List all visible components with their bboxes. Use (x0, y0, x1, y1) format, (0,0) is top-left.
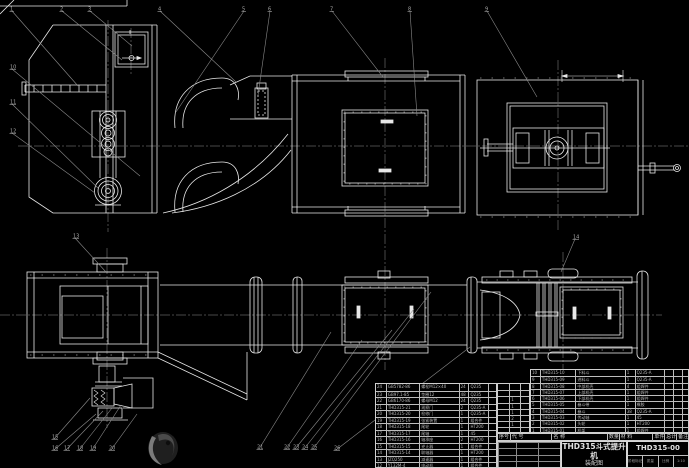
bom-cell: 1 (459, 444, 469, 450)
bom-table-left: 24GB5782-86螺栓M12×4024Q23523GB97.1-85垫圈12… (375, 383, 497, 468)
bom-cell (498, 397, 509, 402)
bom-cell: Q235 (468, 398, 488, 404)
bom-cell: THD315-16 (386, 437, 419, 443)
side-elevation-view (0, 0, 681, 217)
bom-cell: 2 (531, 421, 540, 426)
bom-row: 4THD315-04畚斗38Q235-A (531, 408, 688, 414)
bom-row: 序号代 号名 称数量材 料单件总计备注 (498, 434, 688, 441)
bom-cell: 组合件 (468, 463, 488, 468)
bom-cell (673, 409, 682, 414)
bom-cell: 22 (376, 398, 386, 404)
bom-cell: 组焊件 (635, 384, 665, 389)
bom-cell: 材 料 (619, 434, 653, 441)
bom-cell (509, 384, 519, 390)
bom-cell: 螺母M12 (419, 398, 458, 404)
bom-cell: 10 (531, 370, 540, 376)
bom-cell: 20 (376, 411, 386, 417)
bom-cell (664, 421, 673, 426)
bom-row: 24GB5782-86螺栓M12×4024Q235 (376, 384, 496, 391)
bom-cell (488, 424, 496, 430)
bom-row: 1 (498, 396, 529, 402)
bom-cell: 1 (509, 422, 519, 427)
title-block-footer: 阶段标记质量比例1:10 (628, 455, 688, 468)
bom-cell (673, 421, 682, 426)
bom-cell (682, 377, 688, 382)
bom-cell (498, 384, 509, 390)
bom-cell: Q235-A (635, 377, 665, 382)
bom-cell: THD315-04 (540, 409, 576, 414)
bom-row (498, 390, 529, 396)
bom-row: 20THD315-20检修门1Q235-A (376, 410, 496, 417)
bom-cell: THD315-21 (386, 405, 419, 411)
bom-cell (682, 402, 688, 407)
bom-cell: 橡胶 (635, 402, 665, 407)
bom-cell (520, 422, 529, 427)
bom-cell (520, 404, 529, 409)
bom-cell: 2 (459, 405, 469, 411)
bom-cell: THD315-05 (540, 402, 576, 407)
bom-row (498, 384, 529, 390)
bom-cell: 电动机 (419, 463, 458, 468)
bom-cell: 畚斗 (575, 409, 624, 414)
leader-line (66, 411, 103, 450)
bom-cell (520, 416, 529, 421)
bom-cell: 螺栓M12×40 (419, 384, 458, 391)
leader-line (487, 11, 537, 97)
bom-cell: 下部机壳 (575, 396, 624, 401)
bom-cell: Q235-A (468, 411, 488, 417)
bom-row: 9THD315-09进料斗1Q235-A (531, 376, 688, 382)
bom-cell: 3 (531, 415, 540, 420)
leader-line (75, 238, 106, 272)
bom-row: 7THD315-07上部机壳1组焊件 (531, 389, 688, 395)
bom-row: 12Y132M-4电动机1组合件 (376, 462, 496, 468)
bom-table-right: 10THD315-10下料斗1Q235-A9THD315-09进料斗1Q235-… (530, 369, 689, 433)
bom-header-row: 序号代 号名 称数量材 料单件总计备注 (497, 433, 689, 441)
bom-cell: HT200 (635, 421, 665, 426)
bom-cell: 15 (376, 444, 386, 450)
bom-cell: THD315-18 (386, 424, 419, 430)
bom-cell: 1 (459, 418, 469, 424)
bom-cell (488, 384, 496, 391)
bom-cell (488, 457, 496, 463)
bom-cell (520, 397, 529, 402)
bom-row: 5THD315-05畚斗带1橡胶 (531, 401, 688, 407)
bom-cell: 组焊件 (635, 396, 665, 401)
bom-cell: 1 (625, 415, 635, 420)
bom-cell (664, 396, 673, 401)
bom-cell: 下料斗 (575, 370, 624, 376)
bom-cell: 48 (459, 392, 469, 398)
bom-cell: 组合件 (468, 418, 488, 424)
bom-cell: 13 (376, 457, 386, 463)
bom-cell: THD315-17 (386, 431, 419, 437)
bom-cell (664, 370, 673, 376)
bom-cell: 逆止器 (419, 444, 458, 450)
bom-cell: THD315-10 (540, 370, 576, 376)
bom-cell: 2 (459, 437, 469, 443)
bom-cell: 尾轮 (419, 424, 458, 430)
leader-line (332, 11, 383, 77)
bom-cell: 传动轴 (575, 415, 624, 420)
bom-cell: 序号 (498, 434, 510, 441)
bom-cell: 1 (625, 396, 635, 401)
bom-cell (664, 415, 673, 420)
bom-cell: 8 (531, 384, 540, 389)
bom-cell (488, 411, 496, 417)
bom-row: 10THD315-10下料斗1Q235-A (531, 370, 688, 376)
bom-cell: 1 (459, 424, 469, 430)
bom-row: 13JZQ250减速器1组合件 (376, 456, 496, 463)
bom-cell: 7 (531, 390, 540, 395)
bom-cell: 中部机壳 (575, 384, 624, 389)
bom-cell (488, 450, 496, 456)
bom-cell (488, 444, 496, 450)
bom-cell: 18 (376, 424, 386, 430)
bom-cell (509, 391, 519, 396)
leader-line (410, 11, 417, 116)
bom-cell (682, 384, 688, 389)
cad-drawing-sheet: 1234567891011121314151617181920212223242… (0, 0, 689, 468)
bom-cell: THD315-15 (386, 444, 419, 450)
bom-cell: 4 (531, 409, 540, 414)
bom-cell: 45 (468, 431, 488, 437)
bom-cell: 数量 (607, 434, 619, 441)
bom-cell (498, 391, 509, 396)
bom-cell (673, 377, 682, 382)
bom-cell: GB5782-86 (386, 384, 419, 391)
bom-cell (682, 370, 688, 376)
bom-cell (498, 422, 509, 427)
bom-cell: HT200 (468, 437, 488, 443)
bom-cell (664, 390, 673, 395)
bom-cell: 17 (376, 431, 386, 437)
title-block-footer-cell: 1:10 (673, 456, 688, 468)
bom-row: 14THD315-14联轴器1HT200 (376, 449, 496, 456)
title-block-number: THD315-00 阶段标记质量比例1:10 (627, 441, 689, 468)
bom-cell: Y132M-4 (386, 463, 419, 468)
bom-cell: 1 (459, 463, 469, 468)
bom-row: 1 (498, 403, 529, 409)
bom-cell: 38 (625, 409, 635, 414)
bom-cell: 头轮 (575, 421, 624, 426)
bom-cell: 观察门 (419, 405, 458, 411)
bom-cell (520, 410, 529, 415)
bom-cell: 19 (376, 418, 386, 424)
doc-type-label: 装配图 (562, 460, 626, 468)
bom-cell: HT200 (468, 450, 488, 456)
bom-cell (673, 390, 682, 395)
bom-cell: JZQ250 (386, 457, 419, 463)
bom-cell (664, 409, 673, 414)
bom-cell: GB6170-86 (386, 398, 419, 404)
bom-cell (488, 405, 496, 411)
leader-line (12, 11, 78, 86)
bom-cell (498, 404, 509, 409)
bom-cell: 1 (459, 431, 469, 437)
bom-cell (682, 396, 688, 401)
bom-row: 1 (498, 421, 529, 427)
bom-cell (673, 402, 682, 407)
bom-cell: 张紧装置 (419, 418, 458, 424)
bom-cell: 1 (459, 457, 469, 463)
bom-cell: 9 (531, 377, 540, 382)
bom-row: 2THD315-02头轮1HT200 (531, 420, 688, 426)
bom-row: 1 (498, 409, 529, 415)
bom-cell (682, 390, 688, 395)
bom-cell: 轴承座 (419, 437, 458, 443)
bom-cell: 1 (459, 450, 469, 456)
bom-row: 6THD315-06下部机壳1组焊件 (531, 395, 688, 401)
bom-cell: Q235 (468, 384, 488, 391)
bom-row: 23GB97.1-85垫圈1248Q235 (376, 391, 496, 398)
bom-row: 18THD315-18尾轮1HT200 (376, 423, 496, 430)
bom-cell: 12 (376, 463, 386, 468)
bom-cell: THD315-07 (540, 390, 576, 395)
title-block-footer-cell: 质量 (642, 456, 657, 468)
leader-line (90, 11, 132, 46)
bom-row: 3THD315-03传动轴145 (531, 414, 688, 420)
bom-row: 8THD315-08中部机壳4组焊件 (531, 383, 688, 389)
title-block-signature-grid (497, 441, 561, 468)
bom-cell: THD315-03 (540, 415, 576, 420)
bom-cell: Q235-A (635, 409, 665, 414)
bom-cell (488, 431, 496, 437)
bom-cell (488, 418, 496, 424)
leader-line (286, 340, 362, 449)
bom-cell (488, 392, 496, 398)
bom-cell: 单件 (652, 434, 664, 441)
product-title: THD315斗式提升机 (562, 442, 626, 460)
bom-row: 21THD315-21观察门2Q235-A (376, 404, 496, 411)
bom-cell (488, 437, 496, 443)
bom-cell (498, 416, 509, 421)
bom-cell: 1 (509, 404, 519, 409)
bom-cell (488, 398, 496, 404)
bom-cell: 21 (376, 405, 386, 411)
leader-line (259, 332, 331, 449)
bom-cell: Q235-A (635, 370, 665, 376)
bom-cell: 组合件 (468, 444, 488, 450)
bom-cell: 1 (625, 377, 635, 382)
bom-cell (488, 463, 496, 468)
bom-cell: 1 (625, 421, 635, 426)
bom-cell: THD315-14 (386, 450, 419, 456)
leader-line (54, 398, 90, 439)
bom-cell: 16 (376, 437, 386, 443)
bom-extension-grid: 11121 (497, 383, 530, 433)
bom-row: 15THD315-15逆止器1组合件 (376, 443, 496, 450)
bom-cell (664, 377, 673, 382)
bom-cell: GB97.1-85 (386, 392, 419, 398)
bom-cell: Q235 (468, 392, 488, 398)
bom-cell: 1 (625, 370, 635, 376)
bom-cell: 检修门 (419, 411, 458, 417)
bom-cell (682, 409, 688, 414)
bom-cell: 24 (376, 384, 386, 391)
bom-cell: 23 (376, 392, 386, 398)
bom-cell: 联轴器 (419, 450, 458, 456)
bom-cell (682, 421, 688, 426)
bom-cell: THD315-09 (540, 377, 576, 382)
bom-cell: 24 (459, 384, 469, 391)
bom-cell: Q235-A (468, 405, 488, 411)
bom-cell: 名 称 (551, 434, 606, 441)
bom-cell: 总计 (664, 434, 676, 441)
bom-cell: 5 (531, 402, 540, 407)
drawing-number: THD315-00 (628, 442, 688, 455)
bom-cell (520, 384, 529, 390)
bom-cell: 减速器 (419, 457, 458, 463)
leader-line (176, 11, 244, 112)
title-block-footer-cell: 比例 (658, 456, 673, 468)
bom-cell: 组焊件 (635, 390, 665, 395)
bom-cell: 1 (459, 411, 469, 417)
bom-cell (673, 384, 682, 389)
bom-cell: 1 (509, 397, 519, 402)
bom-cell (664, 384, 673, 389)
bom-cell: 24 (459, 398, 469, 404)
bom-cell: 2 (509, 416, 519, 421)
bom-cell: THD315-19 (386, 418, 419, 424)
bom-cell: 组合件 (468, 457, 488, 463)
watermark-logo-icon (148, 432, 178, 465)
bom-cell: 垫圈12 (419, 392, 458, 398)
bom-cell: 1 (509, 410, 519, 415)
bom-cell (664, 402, 673, 407)
title-block-title: THD315斗式提升机 装配图 (561, 441, 627, 468)
bom-cell: 1 (625, 402, 635, 407)
bom-row: 19THD315-19张紧装置1组合件 (376, 417, 496, 424)
bom-cell: 进料斗 (575, 377, 624, 382)
bom-cell: 45 (635, 415, 665, 420)
bom-cell: 6 (531, 396, 540, 401)
bom-cell: THD315-20 (386, 411, 419, 417)
bom-cell: 畚斗带 (575, 402, 624, 407)
leader-line (12, 133, 95, 193)
title-block-footer-cell: 阶段标记 (628, 456, 642, 468)
bom-cell (673, 415, 682, 420)
bom-row: 2 (498, 415, 529, 421)
bom-cell: 上部机壳 (575, 390, 624, 395)
bom-row: 17THD315-17尾轴145 (376, 430, 496, 437)
bom-cell: 4 (625, 384, 635, 389)
bom-cell: THD315-08 (540, 384, 576, 389)
leader-line (160, 11, 236, 82)
bom-cell: 代 号 (510, 434, 552, 441)
bom-cell (682, 415, 688, 420)
bom-cell (498, 410, 509, 415)
bom-cell: THD315-02 (540, 421, 576, 426)
bom-cell: 14 (376, 450, 386, 456)
bom-cell: HT200 (468, 424, 488, 430)
bom-cell (520, 391, 529, 396)
bom-cell (673, 370, 682, 376)
leader-line (258, 11, 270, 95)
bom-cell: 尾轴 (419, 431, 458, 437)
bom-row: 22GB6170-86螺母M1224Q235 (376, 397, 496, 404)
bom-row: 16THD315-16轴承座2HT200 (376, 436, 496, 443)
bom-cell: 1 (625, 390, 635, 395)
bom-cell: 备注 (676, 434, 688, 441)
bom-cell (673, 396, 682, 401)
bom-cell: THD315-06 (540, 396, 576, 401)
